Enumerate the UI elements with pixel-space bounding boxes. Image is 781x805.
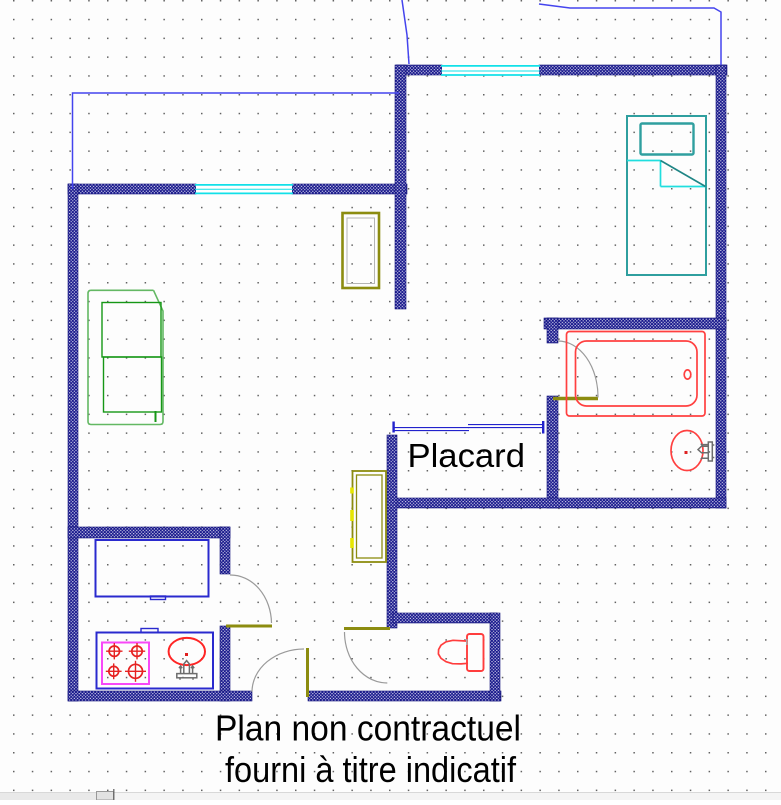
svg-text:fourni à titre indicatif: fourni à titre indicatif [225,749,517,790]
svg-text:Plan non contractuel: Plan non contractuel [215,708,521,749]
svg-text:Placard: Placard [408,438,526,475]
